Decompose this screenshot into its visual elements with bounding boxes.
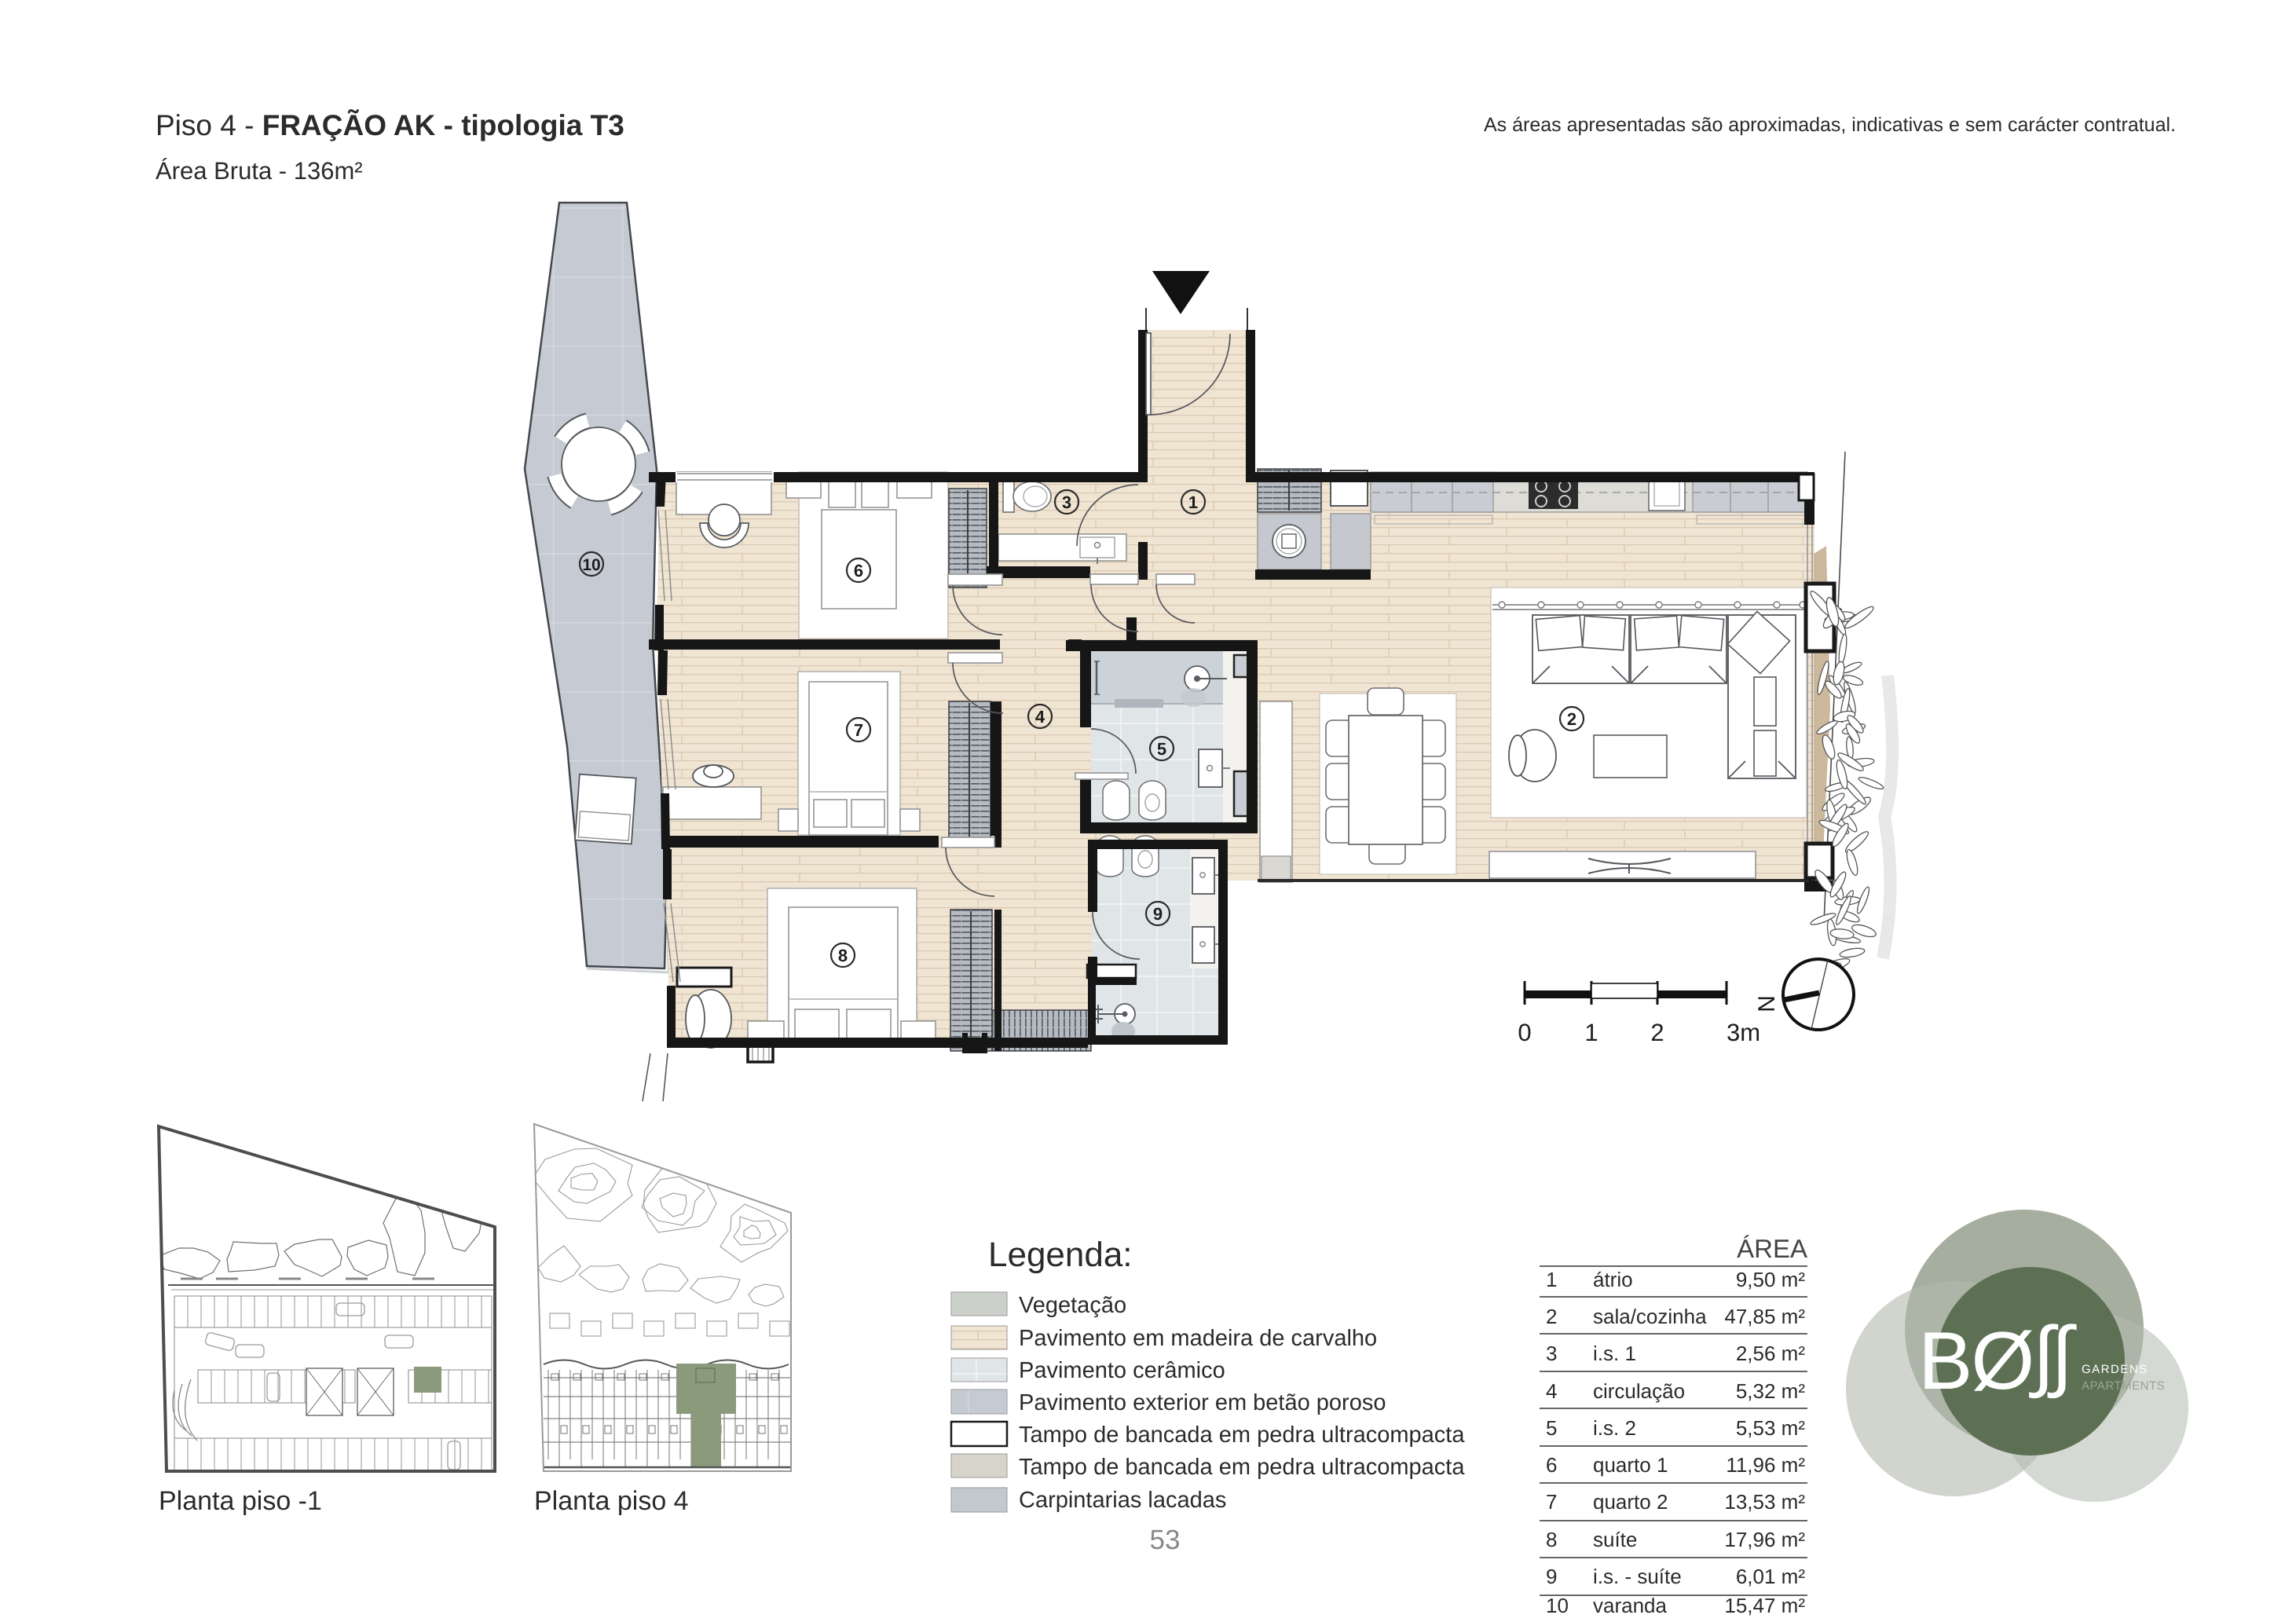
svg-text:Planta piso 4: Planta piso 4	[534, 1486, 689, 1516]
svg-text:1: 1	[1188, 492, 1198, 512]
svg-text:quarto 2: quarto 2	[1593, 1490, 1668, 1514]
svg-text:sala/cozinha: sala/cozinha	[1593, 1305, 1707, 1328]
svg-text:10: 10	[1546, 1594, 1569, 1617]
svg-text:8: 8	[1546, 1528, 1557, 1551]
svg-text:7: 7	[854, 720, 863, 740]
svg-text:quarto 1: quarto 1	[1593, 1453, 1668, 1477]
svg-text:2: 2	[1567, 709, 1576, 729]
svg-text:suíte: suíte	[1593, 1528, 1637, 1551]
svg-text:2: 2	[1546, 1305, 1557, 1328]
svg-text:3m: 3m	[1727, 1019, 1760, 1046]
svg-text:Legenda:: Legenda:	[988, 1236, 1133, 1274]
svg-text:varanda: varanda	[1593, 1594, 1667, 1617]
svg-text:5: 5	[1546, 1416, 1557, 1440]
svg-text:2: 2	[1650, 1019, 1664, 1046]
svg-text:47,85 m²: 47,85 m²	[1724, 1305, 1805, 1328]
svg-text:17,96 m²: 17,96 m²	[1724, 1528, 1805, 1551]
svg-text:5,32 m²: 5,32 m²	[1736, 1379, 1805, 1403]
svg-text:0: 0	[1518, 1019, 1531, 1046]
svg-text:9: 9	[1153, 904, 1163, 924]
svg-text:6,01 m²: 6,01 m²	[1736, 1565, 1805, 1588]
svg-text:Carpintarias lacadas: Carpintarias lacadas	[1019, 1488, 1226, 1513]
svg-text:i.s. - suíte: i.s. - suíte	[1593, 1565, 1682, 1588]
svg-text:Pavimento exterior em betão po: Pavimento exterior em betão poroso	[1019, 1390, 1386, 1415]
svg-text:Pavimento cerâmico: Pavimento cerâmico	[1019, 1358, 1225, 1383]
svg-text:1: 1	[1584, 1019, 1598, 1046]
svg-text:15,47 m²: 15,47 m²	[1724, 1594, 1805, 1617]
svg-text:4: 4	[1035, 707, 1045, 727]
svg-text:1: 1	[1546, 1268, 1557, 1291]
svg-text:9,50 m²: 9,50 m²	[1736, 1268, 1805, 1291]
svg-text:circulação: circulação	[1593, 1379, 1685, 1403]
svg-text:GARDENS: GARDENS	[2082, 1363, 2148, 1376]
svg-text:Pavimento em madeira de carval: Pavimento em madeira de carvalho	[1019, 1326, 1377, 1351]
svg-text:3: 3	[1062, 492, 1071, 512]
svg-text:As áreas apresentadas são apro: As áreas apresentadas são aproximadas, i…	[1484, 114, 2176, 136]
svg-text:53: 53	[1150, 1525, 1181, 1555]
svg-text:10: 10	[582, 556, 600, 574]
svg-text:ÁREA: ÁREA	[1737, 1234, 1807, 1263]
svg-text:3: 3	[1546, 1342, 1557, 1365]
svg-text:i.s. 2: i.s. 2	[1593, 1416, 1636, 1440]
svg-text:APARTMENTS: APARTMENTS	[2082, 1379, 2165, 1393]
svg-text:i.s. 1: i.s. 1	[1593, 1342, 1636, 1365]
svg-text:Piso 4 - FRAÇÃO AK - tipologia: Piso 4 - FRAÇÃO AK - tipologia T3	[156, 109, 624, 141]
svg-text:6: 6	[854, 561, 863, 580]
svg-text:Tampo de bancada em pedra ultr: Tampo de bancada em pedra ultracompacta	[1019, 1455, 1465, 1480]
svg-text:Tampo de bancada em pedra ultr: Tampo de bancada em pedra ultracompacta	[1019, 1422, 1465, 1448]
svg-text:átrio: átrio	[1593, 1268, 1633, 1291]
svg-text:11,96 m²: 11,96 m²	[1726, 1453, 1805, 1477]
svg-text:Área Bruta - 136m²: Área Bruta - 136m²	[156, 157, 363, 185]
svg-text:8: 8	[838, 946, 848, 965]
svg-text:Vegetação: Vegetação	[1019, 1293, 1126, 1318]
svg-text:Planta piso -1: Planta piso -1	[159, 1486, 322, 1516]
svg-text:6: 6	[1546, 1453, 1557, 1477]
svg-text:2,56 m²: 2,56 m²	[1736, 1342, 1805, 1365]
svg-text:N: N	[1754, 995, 1780, 1012]
svg-text:9: 9	[1546, 1565, 1557, 1588]
svg-text:5: 5	[1157, 739, 1166, 759]
svg-text:4: 4	[1546, 1379, 1557, 1403]
svg-text:BØ: BØ	[1918, 1316, 2033, 1407]
svg-text:5,53 m²: 5,53 m²	[1736, 1416, 1805, 1440]
svg-text:7: 7	[1546, 1490, 1557, 1514]
svg-text:13,53 m²: 13,53 m²	[1724, 1490, 1805, 1514]
